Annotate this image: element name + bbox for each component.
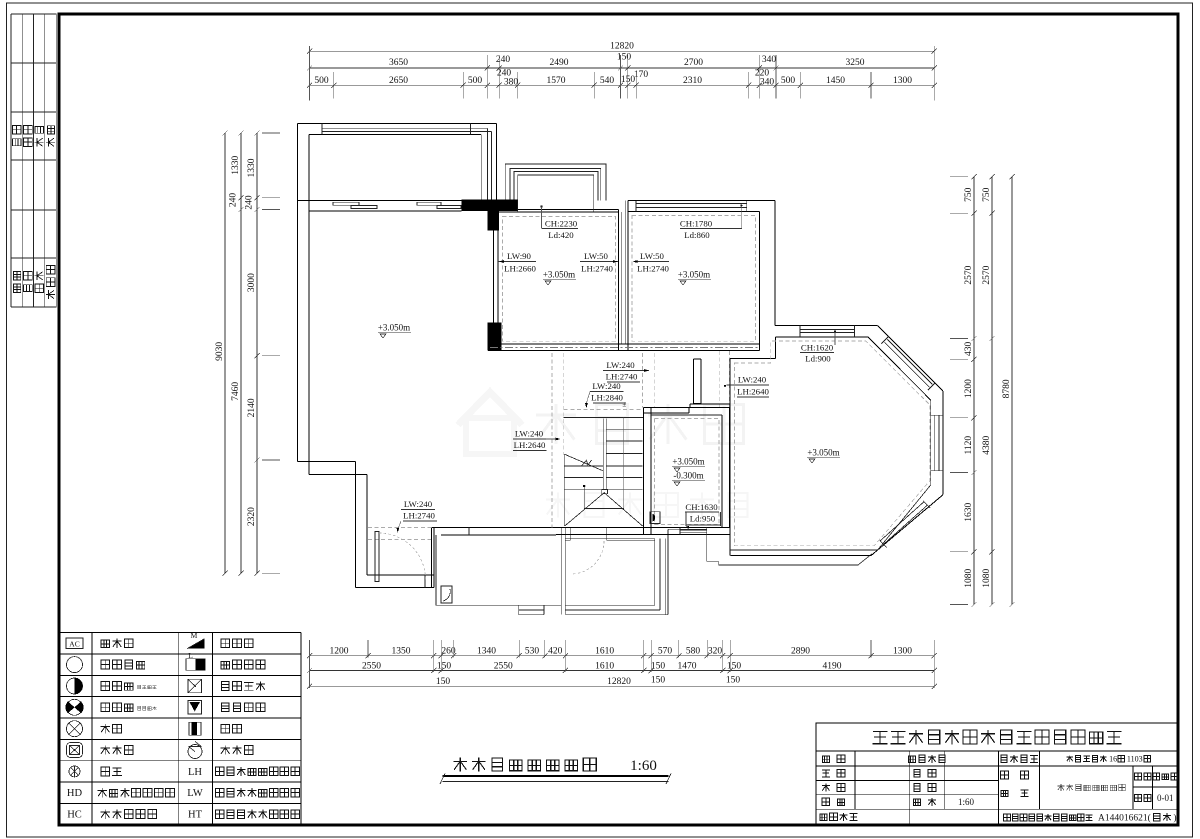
svg-text:1200: 1200 [330,647,349,657]
svg-text:150: 150 [726,676,741,686]
svg-text:HT: HT [188,810,203,821]
svg-text:570: 570 [658,647,673,657]
svg-text:3650: 3650 [389,58,408,68]
svg-text:240: 240 [229,193,239,208]
svg-text:150: 150 [651,676,666,686]
svg-text:150: 150 [651,661,666,671]
svg-text:LH:2660: LH:2660 [504,264,536,274]
svg-text:240: 240 [496,55,511,65]
svg-text:4190: 4190 [823,661,842,671]
svg-text:1300: 1300 [893,647,912,657]
svg-text:±: ± [622,401,626,409]
svg-text:580: 580 [686,647,701,657]
svg-text:150: 150 [437,661,452,671]
svg-text:+3.050m: +3.050m [672,457,704,467]
svg-text:1080: 1080 [964,568,974,587]
svg-text:LW:50: LW:50 [584,251,609,261]
svg-text:1630: 1630 [964,502,974,521]
svg-text:500: 500 [468,76,483,86]
svg-text:-0.300m: -0.300m [673,471,703,481]
svg-text:2320: 2320 [247,507,257,526]
svg-text:2550: 2550 [362,661,381,671]
svg-text:LW:90: LW:90 [507,251,532,261]
svg-text:1:60: 1:60 [630,758,657,774]
svg-text:1300: 1300 [893,76,912,86]
svg-text:Ld:860: Ld:860 [684,230,710,240]
svg-text:CH:1620: CH:1620 [801,343,834,353]
svg-text:16: 16 [1109,755,1117,764]
svg-text:3000: 3000 [247,273,257,292]
svg-text:1200: 1200 [964,379,974,398]
svg-text:1330: 1330 [231,155,241,174]
svg-text:1610: 1610 [595,661,614,671]
svg-text:Ld:420: Ld:420 [548,230,574,240]
svg-text:420: 420 [548,647,563,657]
svg-text:2490: 2490 [550,58,569,68]
svg-text:2650: 2650 [389,76,408,86]
svg-text:+3.050m: +3.050m [807,448,839,458]
svg-text:LH:2640: LH:2640 [737,387,769,397]
svg-text:8780: 8780 [1002,379,1012,398]
svg-text:12820: 12820 [607,677,631,687]
svg-text:430: 430 [964,342,974,357]
svg-text:2700: 2700 [684,58,703,68]
svg-text:2140: 2140 [247,398,257,417]
svg-text:LW:240: LW:240 [738,375,767,385]
svg-text:LH:2640: LH:2640 [514,440,546,450]
svg-text:150: 150 [617,53,632,63]
svg-text:LW:240: LW:240 [515,429,544,439]
svg-text:1570: 1570 [547,76,566,86]
svg-text:HD: HD [67,788,83,799]
svg-text:150: 150 [727,661,742,671]
svg-text:LH:2740: LH:2740 [606,372,638,382]
svg-text:2310: 2310 [683,76,702,86]
svg-text:380: 380 [504,78,519,88]
svg-text:+3.050m: +3.050m [678,270,710,280]
svg-text:+3.050m: +3.050m [378,323,410,333]
svg-text:4380: 4380 [982,435,992,454]
svg-text:LH: LH [188,767,202,778]
svg-text:1080: 1080 [982,568,992,587]
svg-text:LW:50: LW:50 [640,251,665,261]
svg-text:2550: 2550 [494,661,513,671]
svg-text:340: 340 [760,78,775,88]
svg-text:1120: 1120 [964,436,974,455]
svg-text:A144016621(: A144016621( [1098,813,1151,824]
svg-text:HC: HC [67,810,82,821]
svg-text:CH:1630: CH:1630 [685,502,718,512]
svg-text:LH:2740: LH:2740 [403,511,435,521]
svg-text:M: M [191,631,198,640]
svg-text:LW:240: LW:240 [404,499,433,509]
svg-text:1350: 1350 [392,647,411,657]
svg-text:L: L [188,651,193,660]
svg-text:320: 320 [708,647,723,657]
svg-text:1340: 1340 [477,647,496,657]
svg-text:540: 540 [600,76,615,86]
svg-text:2890: 2890 [791,647,810,657]
svg-text:LH:2740: LH:2740 [637,264,669,274]
svg-text:1450: 1450 [826,76,845,86]
svg-text:CH:2230: CH:2230 [545,219,578,229]
svg-text:+3.050m: +3.050m [543,270,575,280]
svg-text:1470: 1470 [678,661,697,671]
svg-text:340: 340 [762,55,777,65]
svg-text:1610: 1610 [595,647,614,657]
svg-text:7460: 7460 [231,382,241,401]
svg-text:CH:1780: CH:1780 [680,219,713,229]
svg-text:2570: 2570 [964,265,974,284]
svg-text:): ) [1173,813,1176,824]
svg-text:150: 150 [436,677,451,687]
svg-text:0-01: 0-01 [1157,793,1174,803]
svg-text:500: 500 [314,76,329,86]
svg-text:AC: AC [69,639,79,648]
svg-text:1330: 1330 [247,158,257,177]
svg-text:LW:240: LW:240 [606,360,635,370]
svg-text:2570: 2570 [982,265,992,284]
svg-text:LH:2840: LH:2840 [591,393,623,403]
svg-text:12820: 12820 [610,42,634,52]
svg-text:1:60: 1:60 [958,797,975,807]
svg-text:LH:2740: LH:2740 [581,264,613,274]
svg-text:750: 750 [982,187,992,202]
svg-text:9030: 9030 [215,342,225,361]
svg-text:Ld:950: Ld:950 [690,514,716,524]
svg-text:530: 530 [525,647,540,657]
svg-text:1103: 1103 [1127,755,1143,764]
svg-text:500: 500 [781,76,796,86]
svg-text:3250: 3250 [846,58,865,68]
svg-text:LW: LW [187,788,203,799]
svg-text:240: 240 [245,195,255,210]
svg-text:750: 750 [964,187,974,202]
svg-text:Ld:900: Ld:900 [805,354,831,364]
svg-text:LW:240: LW:240 [592,381,621,391]
